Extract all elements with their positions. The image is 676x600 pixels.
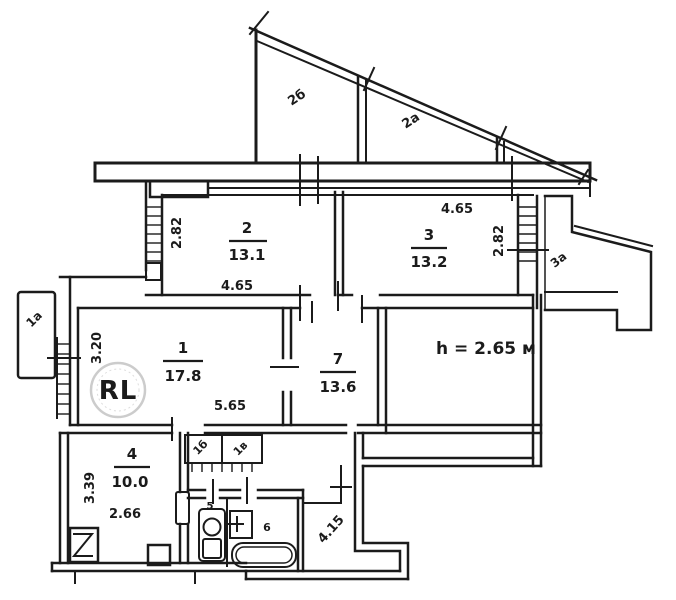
bottom-walls [52,563,408,583]
room7-walls [312,302,386,433]
room4-walls [60,433,189,563]
room7-number: 7 [333,350,343,368]
room2-depth-dim: 2.82 [170,217,185,249]
watermark-text: RL [99,376,138,406]
room2-width-dim: 4.65 [221,279,253,294]
labels: 2б 2а 2 13.1 2.82 4.65 3 13.2 4.65 2.82 … [23,87,569,547]
room2-area: 13.1 [228,246,265,264]
closet-left-label: 1б [191,437,211,457]
room1-number: 1 [178,339,188,357]
balcony-left-outline [18,292,55,378]
floor-plan-canvas: RL 2б 2а 2 13.1 2.82 4.65 3 13.2 4.65 2.… [0,0,676,600]
ceiling-height-note: h = 2.65 м [436,339,536,359]
fridge-icon [70,528,98,562]
room4-number: 4 [127,445,137,463]
hall-walls [363,295,541,466]
toilet-icon [199,509,225,561]
sink-icon [225,511,252,538]
room3-number: 3 [424,226,434,244]
room2-number: 2 [242,219,252,237]
wc-number: 5 [207,501,214,512]
closet-right-label: 1в [231,439,251,459]
balcony-right-label: 3а [548,249,570,270]
fixtures [70,509,296,567]
walls [18,12,652,583]
room3-area: 13.2 [410,253,447,271]
room1-area: 17.8 [164,367,201,385]
bath-number: 6 [263,521,271,534]
room4-width-dim: 2.66 [109,507,141,522]
room7-area: 13.6 [319,378,356,396]
room3-depth-dim: 2.82 [492,225,507,257]
attic-right-label: 2а [400,110,423,132]
room4-depth-dim: 3.39 [83,472,98,504]
hall-dim: 4.15 [315,513,348,547]
room1-depth-dim: 3.20 [90,332,105,364]
floor-plan-page: RL 2б 2а 2 13.1 2.82 4.65 3 13.2 4.65 2.… [0,0,676,600]
balcony-left-label: 1а [23,308,45,330]
room4-area: 10.0 [111,473,148,491]
entry-corridor-walls [303,433,408,579]
bathtub-icon [232,543,296,567]
watermark-logo: RL [91,363,145,417]
room3-width-dim: 4.65 [441,202,473,217]
room3-walls [508,195,548,308]
attic-left-label: 2б [285,87,308,109]
corridor-walls [78,282,533,322]
room1-width-dim: 5.65 [214,399,246,414]
